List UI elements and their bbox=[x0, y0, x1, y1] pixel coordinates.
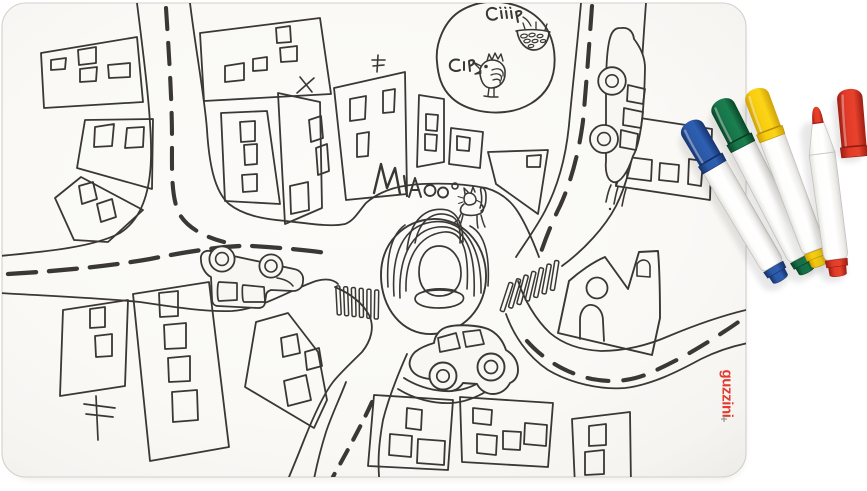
svg-text:guzzini: guzzini bbox=[719, 370, 736, 418]
